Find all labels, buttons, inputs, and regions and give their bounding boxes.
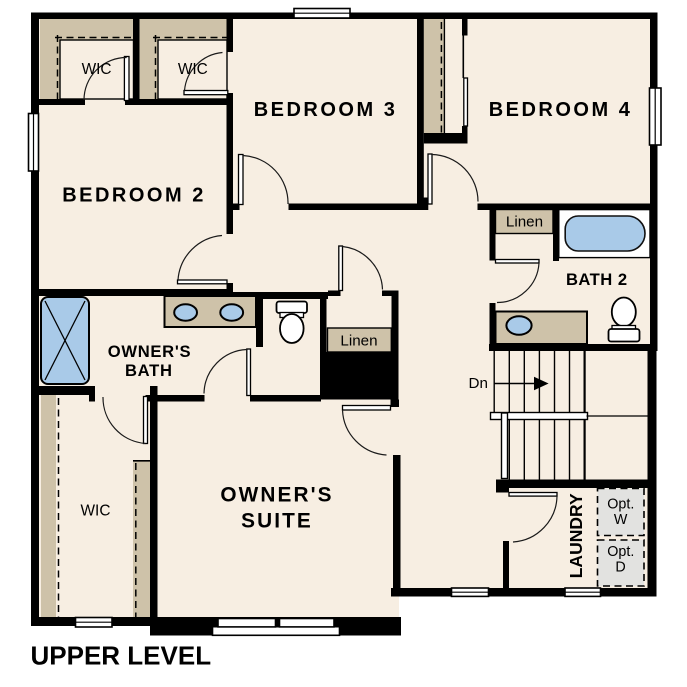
svg-text:LAUNDRY: LAUNDRY: [566, 493, 586, 578]
svg-text:Linen: Linen: [506, 213, 543, 230]
svg-text:Linen: Linen: [340, 332, 377, 349]
svg-text:BEDROOM 2: BEDROOM 2: [62, 185, 206, 207]
svg-text:UPPER LEVEL: UPPER LEVEL: [31, 641, 212, 671]
svg-text:Dn: Dn: [469, 375, 488, 392]
svg-text:BATH 2: BATH 2: [566, 270, 628, 289]
svg-text:SUITE: SUITE: [241, 510, 313, 533]
svg-text:BEDROOM 3: BEDROOM 3: [254, 99, 398, 121]
svg-text:WIC: WIC: [178, 61, 208, 78]
svg-text:BATH: BATH: [125, 361, 173, 380]
svg-text:WIC: WIC: [81, 503, 111, 520]
svg-text:W: W: [614, 512, 628, 528]
svg-text:Opt.: Opt.: [607, 497, 634, 513]
svg-text:Opt.: Opt.: [607, 544, 634, 560]
svg-text:WIC: WIC: [82, 61, 112, 78]
svg-text:D: D: [615, 560, 625, 576]
svg-text:OWNER'S: OWNER'S: [108, 342, 192, 361]
svg-text:OWNER'S: OWNER'S: [220, 484, 333, 507]
svg-text:BEDROOM 4: BEDROOM 4: [489, 99, 633, 121]
